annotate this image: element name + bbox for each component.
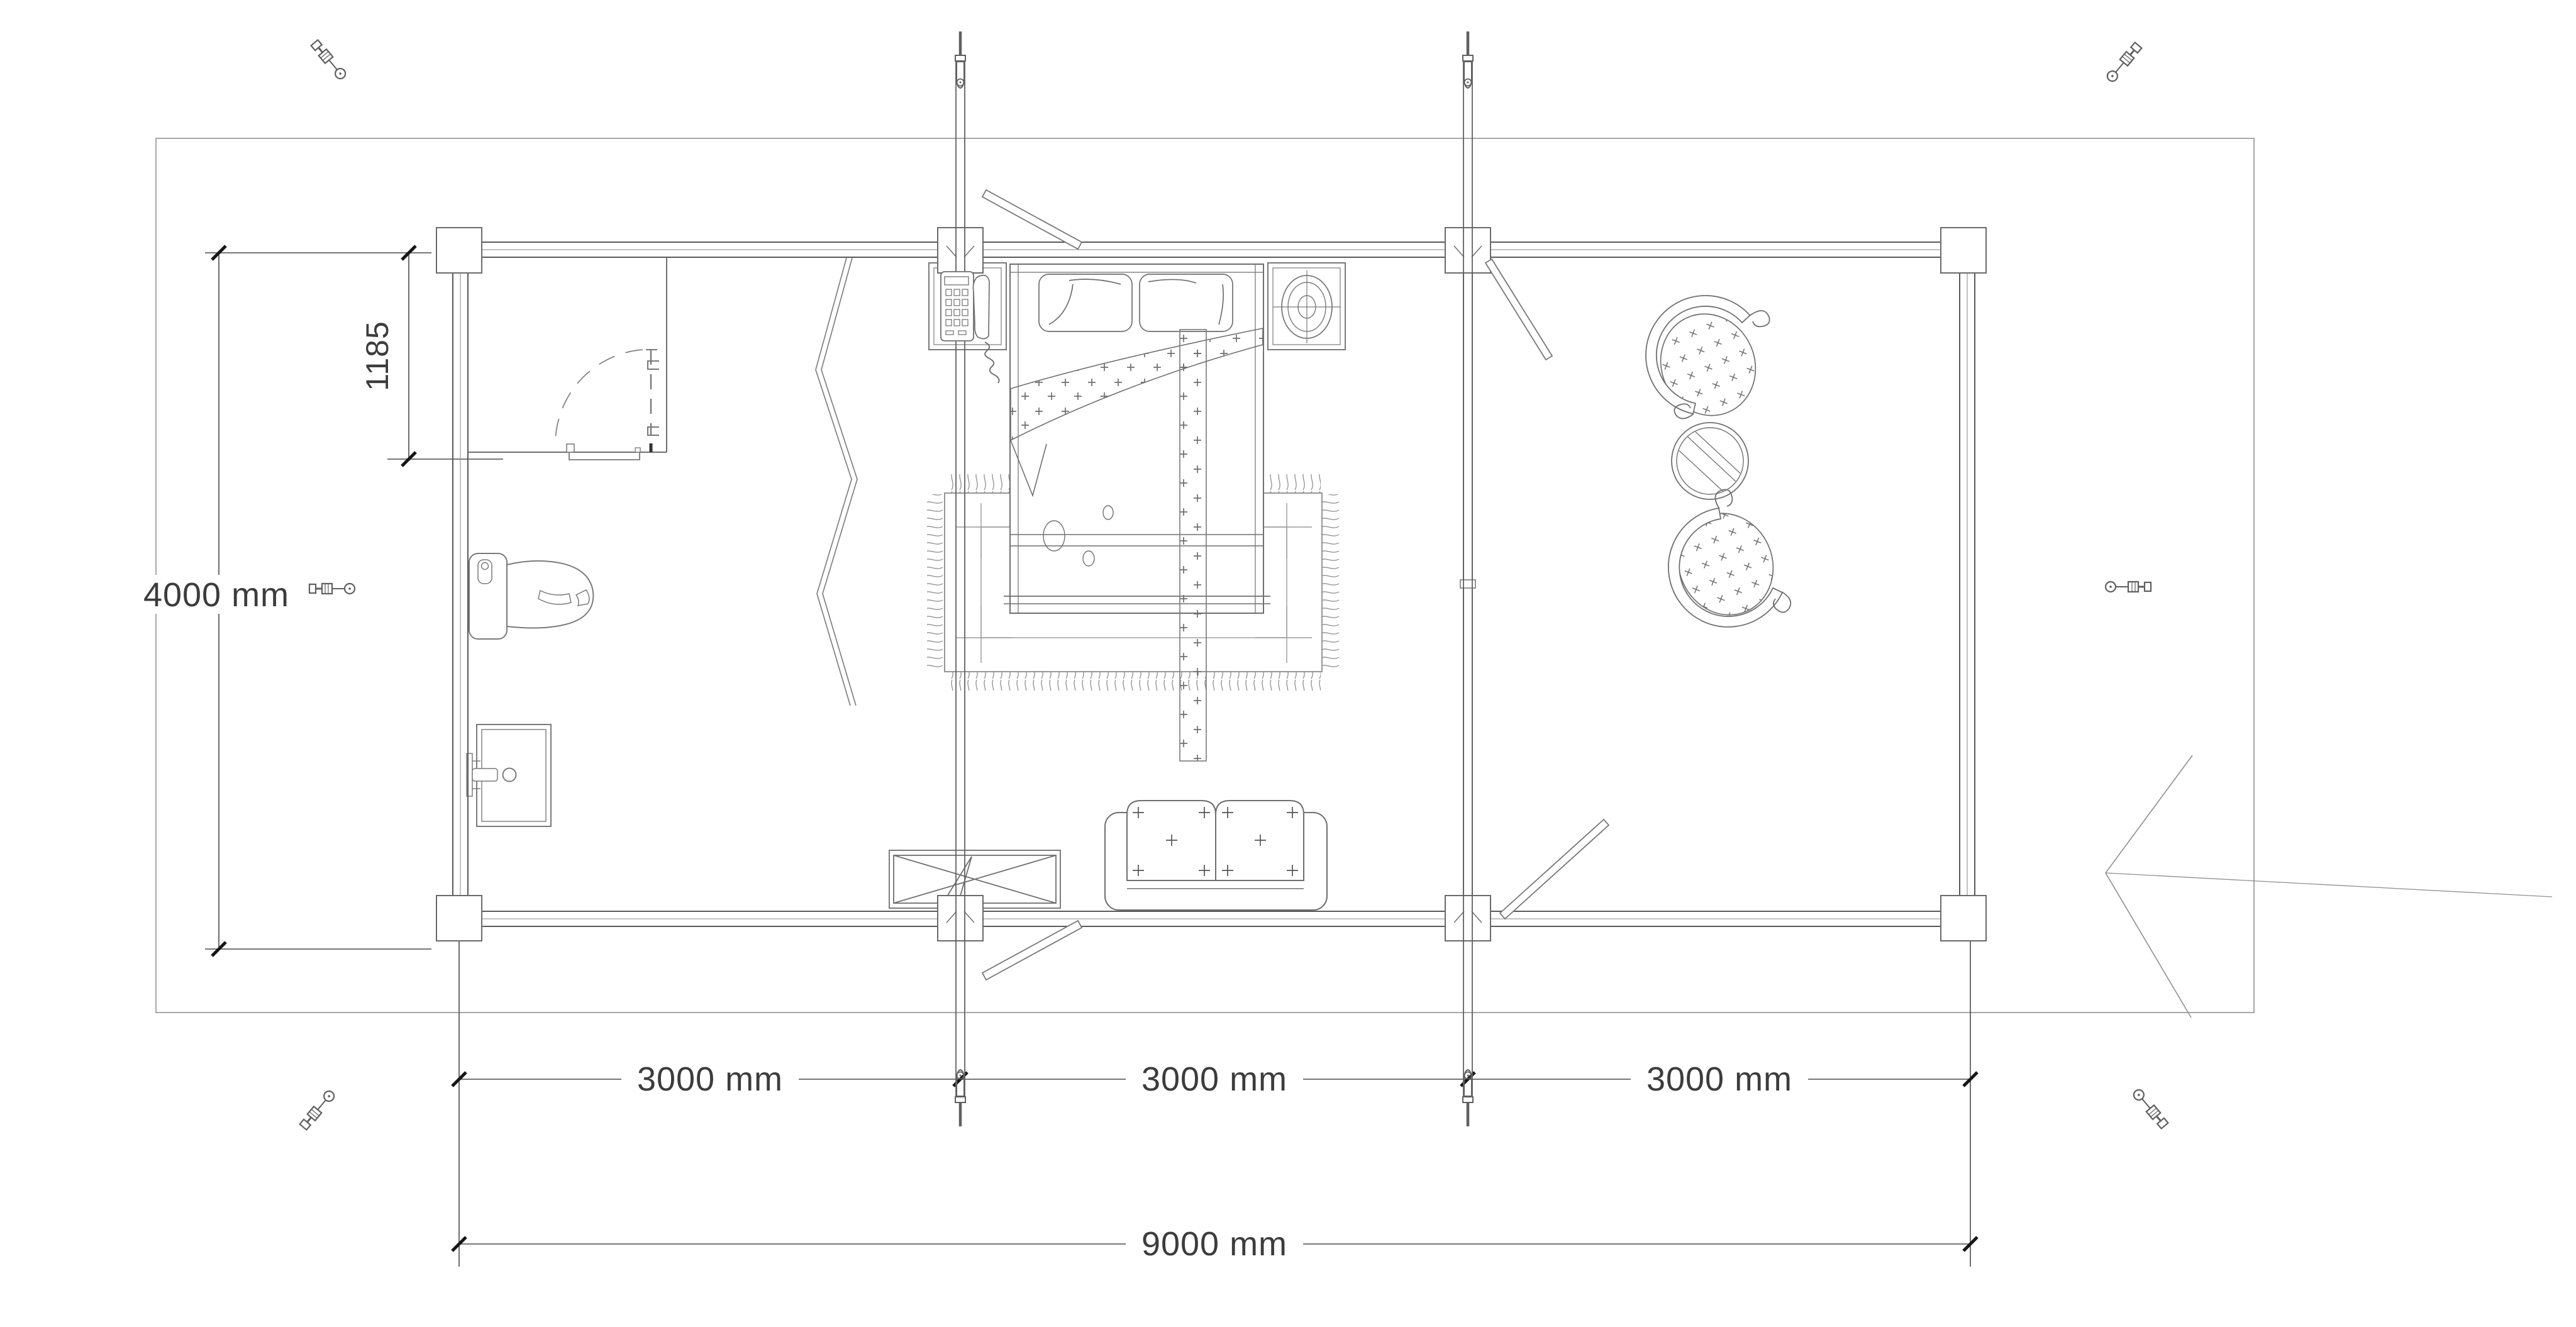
dim-total-9000: 9000 mm [452,1224,1977,1263]
corner-post [1941,896,1986,941]
dim-segment-3-label: 3000 mm [1646,1060,1792,1098]
post-top-mid-2 [1445,228,1491,273]
curtain-partition [816,258,857,706]
door-swing-arc [555,350,643,443]
eyebolt-icon [311,40,348,81]
tie-rod-right [1463,31,1473,1126]
dim-total-label: 9000 mm [1141,1225,1287,1263]
eyebolt-icon [2106,582,2151,592]
corner-post [436,896,482,941]
round-side-table [1668,420,1753,503]
entrance-arrow-icon [2106,755,2552,1018]
door-leaf-right-room-bottom [1500,819,1609,919]
dim-segment-2-label: 3000 mm [1141,1060,1287,1098]
eyebolt-icon [309,584,355,594]
phone-handset [973,275,989,339]
sink-drain [503,769,516,782]
bathroom-door [555,350,659,460]
dim-height-label: 4000 mm [143,576,289,614]
interior-partition [1460,257,1475,911]
door-leaf-right-room-top [1485,259,1552,360]
eyebolt-icon [2132,1088,2169,1129]
corner-post [1941,228,1986,273]
door-sill-track [569,452,640,460]
door-leaf-top-outside [982,190,1082,249]
dim-offset-label: 1185 [360,321,395,391]
eyebolt-icon [2106,42,2143,83]
double-bed [1004,264,1270,613]
armchair-top [1645,296,1772,431]
dim-offset-1185: 1185 [360,246,503,466]
sink-vanity [467,725,551,826]
post-bottom-mid-2 [1445,896,1491,941]
door-leaf-bottom-outside [982,921,1082,980]
bed-runner [1180,330,1206,761]
post-top-mid-1 [938,228,983,273]
turnbuckle-icon [1463,31,1473,88]
floor-plan-canvas: 4000 mm 1185 3000 mm 3000 mm 3000 mm [0,0,2576,1327]
post-bottom-mid-1 [938,896,983,941]
dim-segment-1-label: 3000 mm [637,1060,783,1098]
dim-segments-3000: 3000 mm 3000 mm 3000 mm [452,1059,1977,1098]
armchair-bottom [1662,489,1790,630]
sofa [1105,801,1327,910]
bathroom-partition [468,257,667,452]
eyebolt-icon [299,1089,336,1130]
toilet [469,553,593,639]
corner-post [436,228,482,273]
turnbuckle-icon [955,31,965,88]
